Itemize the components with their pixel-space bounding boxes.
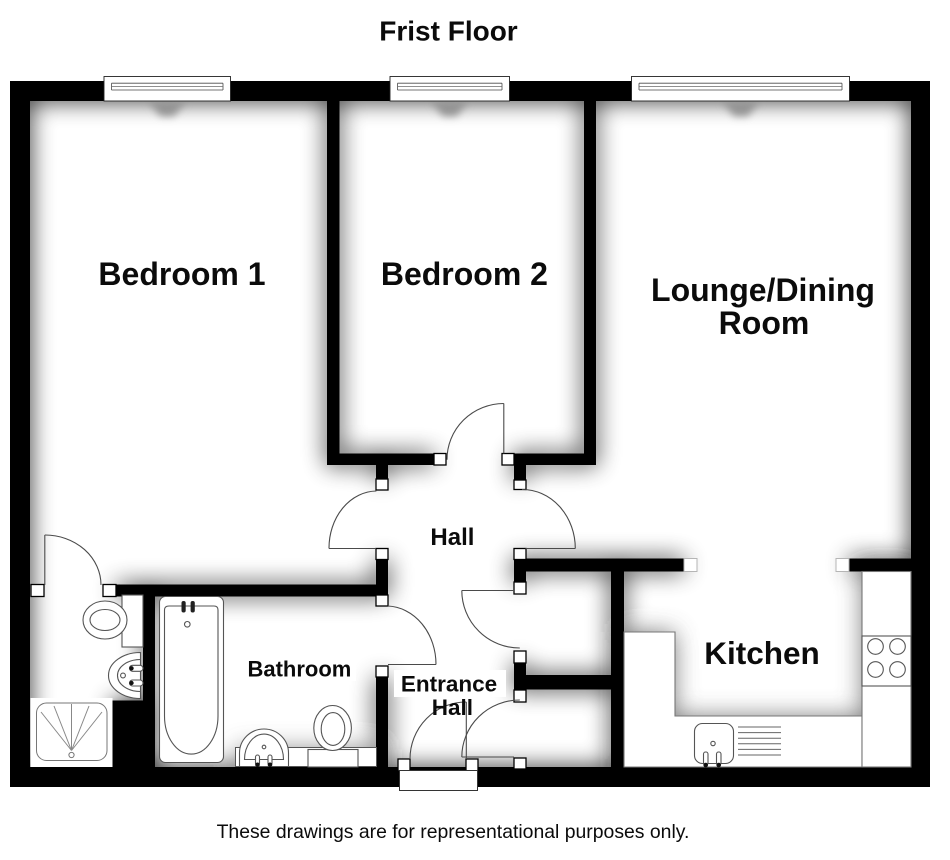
svg-text:These drawings are for represe: These drawings are for representational …	[217, 821, 690, 843]
svg-text:Bedroom 2: Bedroom 2	[381, 256, 548, 292]
svg-text:Frist Floor: Frist Floor	[379, 16, 518, 47]
svg-text:Kitchen: Kitchen	[704, 635, 820, 671]
svg-text:Bathroom: Bathroom	[247, 657, 351, 682]
svg-text:Entrance: Entrance	[401, 672, 497, 697]
svg-text:Bedroom 1: Bedroom 1	[98, 256, 265, 292]
svg-text:Lounge/Dining: Lounge/Dining	[651, 272, 875, 308]
svg-text:Room: Room	[719, 305, 810, 341]
svg-text:Hall: Hall	[432, 695, 473, 720]
svg-text:Hall: Hall	[430, 524, 474, 551]
